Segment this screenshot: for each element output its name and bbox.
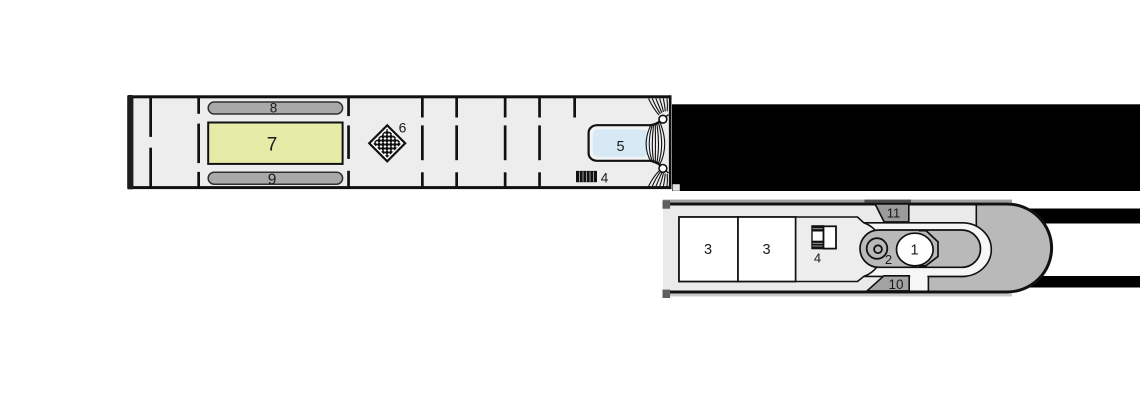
svg-text:1: 1: [910, 243, 918, 259]
svg-text:9: 9: [268, 171, 277, 188]
svg-text:5: 5: [616, 139, 624, 155]
svg-text:4: 4: [601, 170, 609, 185]
svg-text:7: 7: [267, 135, 278, 156]
svg-text:10: 10: [888, 277, 903, 292]
svg-text:6: 6: [399, 120, 407, 136]
svg-text:2: 2: [885, 252, 892, 267]
svg-text:3: 3: [762, 242, 770, 258]
svg-text:4: 4: [814, 251, 821, 266]
svg-text:8: 8: [270, 101, 278, 116]
svg-text:11: 11: [887, 206, 901, 221]
svg-text:3: 3: [704, 242, 712, 258]
